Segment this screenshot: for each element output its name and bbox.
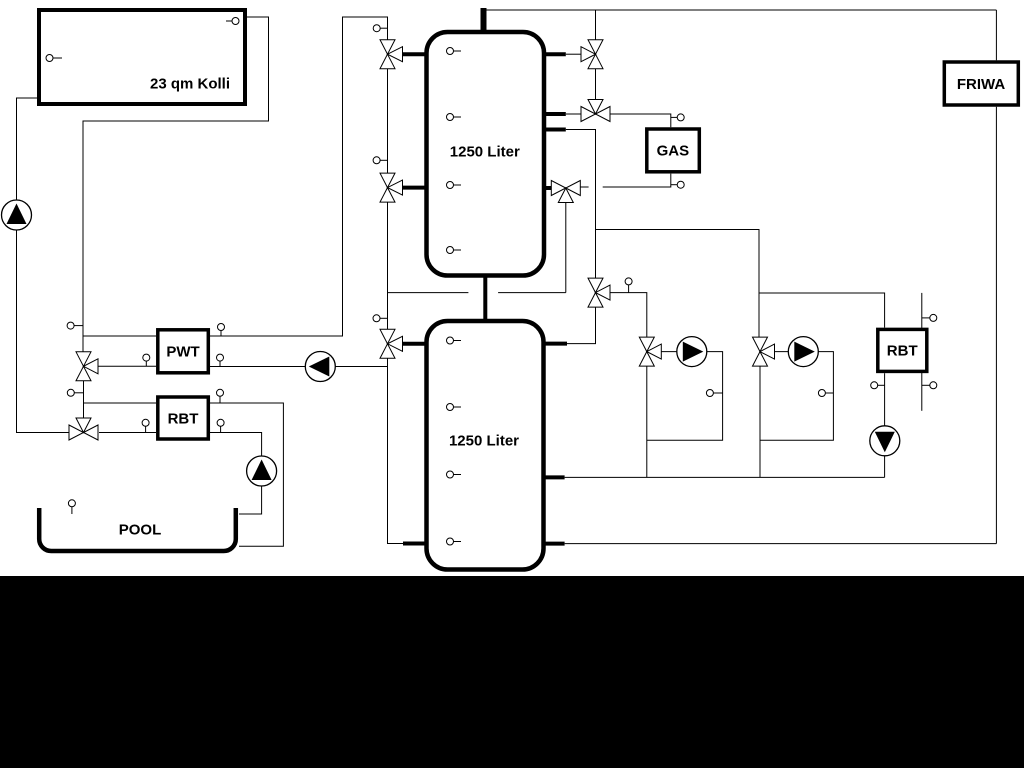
svg-text:23 qm Kolli: 23 qm Kolli	[150, 75, 230, 92]
svg-text:RBT: RBT	[887, 343, 918, 360]
svg-text:GAS: GAS	[657, 143, 690, 160]
svg-text:RBT: RBT	[168, 410, 199, 427]
svg-text:1250 Liter: 1250 Liter	[449, 432, 519, 449]
svg-text:POOL: POOL	[119, 521, 162, 538]
svg-text:FRIWA: FRIWA	[957, 76, 1005, 93]
svg-text:1250 Liter: 1250 Liter	[450, 143, 520, 160]
svg-text:PWT: PWT	[166, 344, 199, 361]
